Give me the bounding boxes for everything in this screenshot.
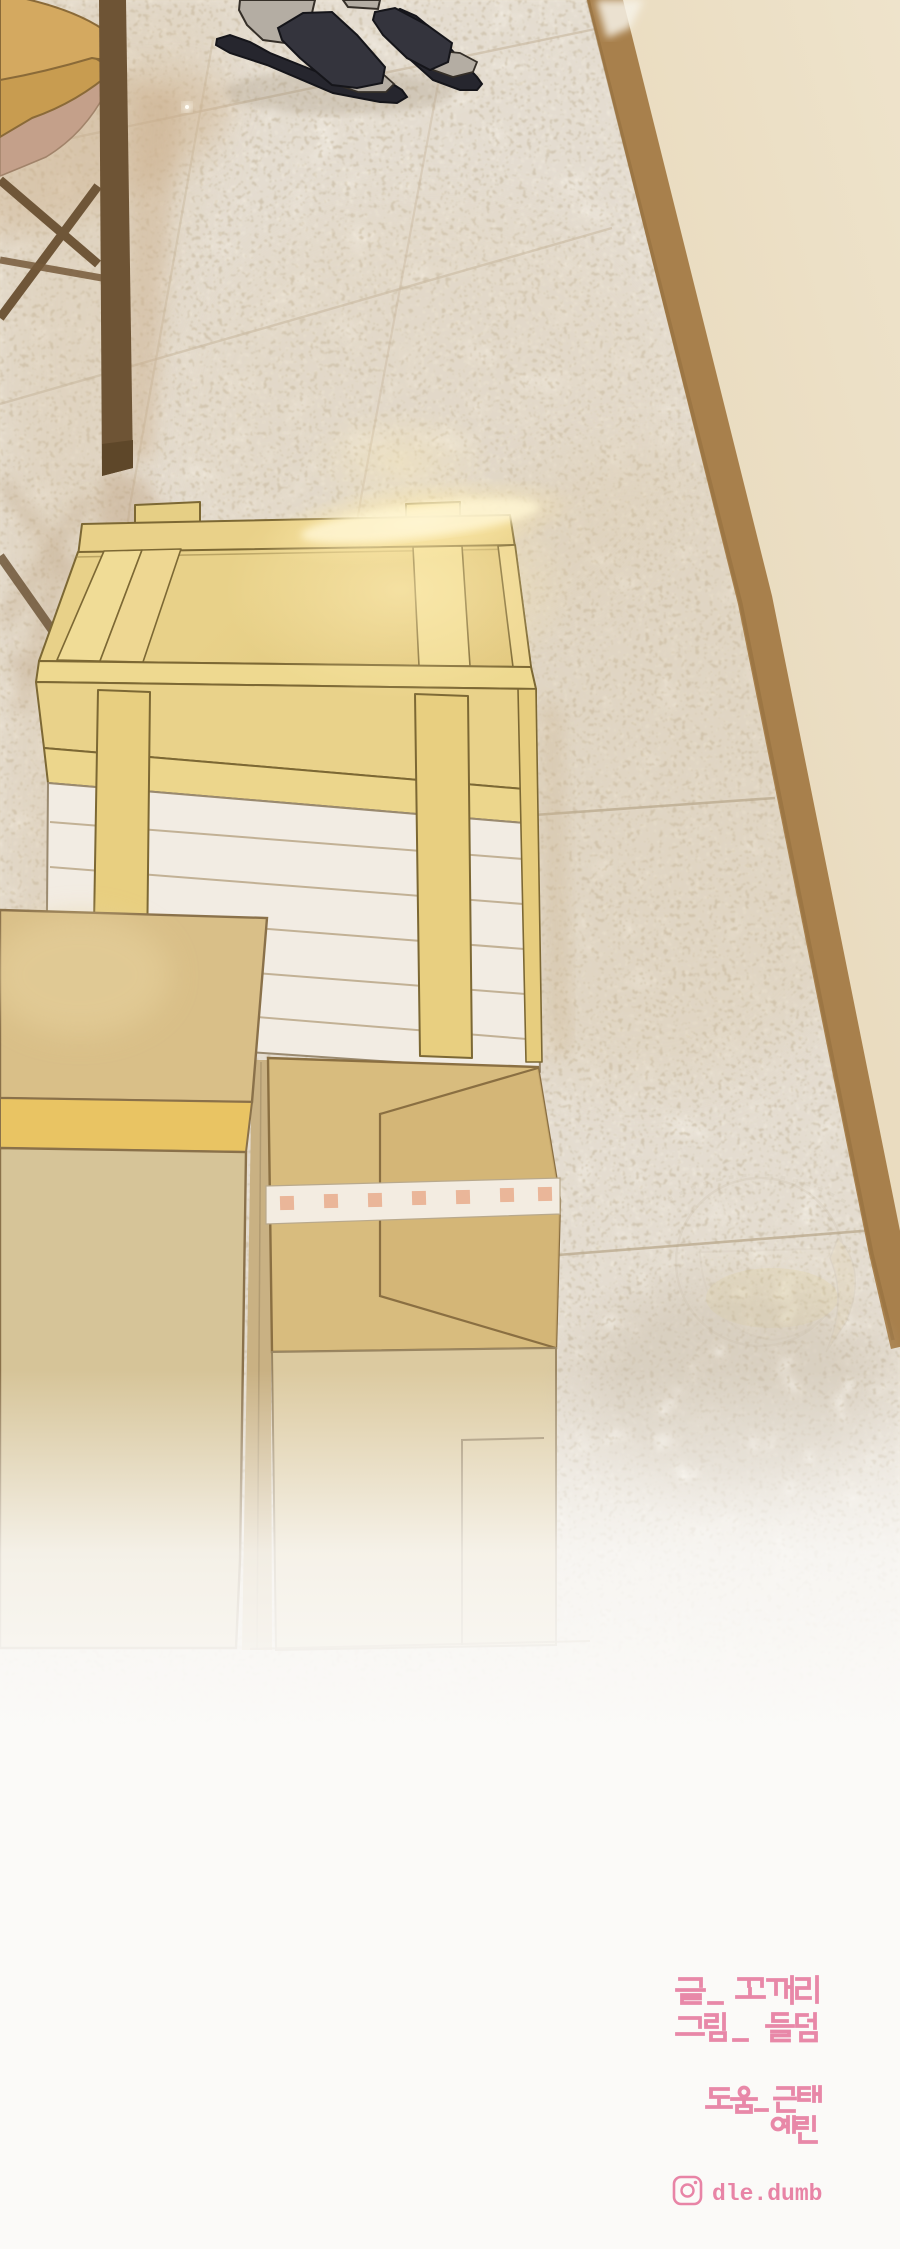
svg-text:dle.dumb: dle.dumb xyxy=(712,2181,822,2207)
